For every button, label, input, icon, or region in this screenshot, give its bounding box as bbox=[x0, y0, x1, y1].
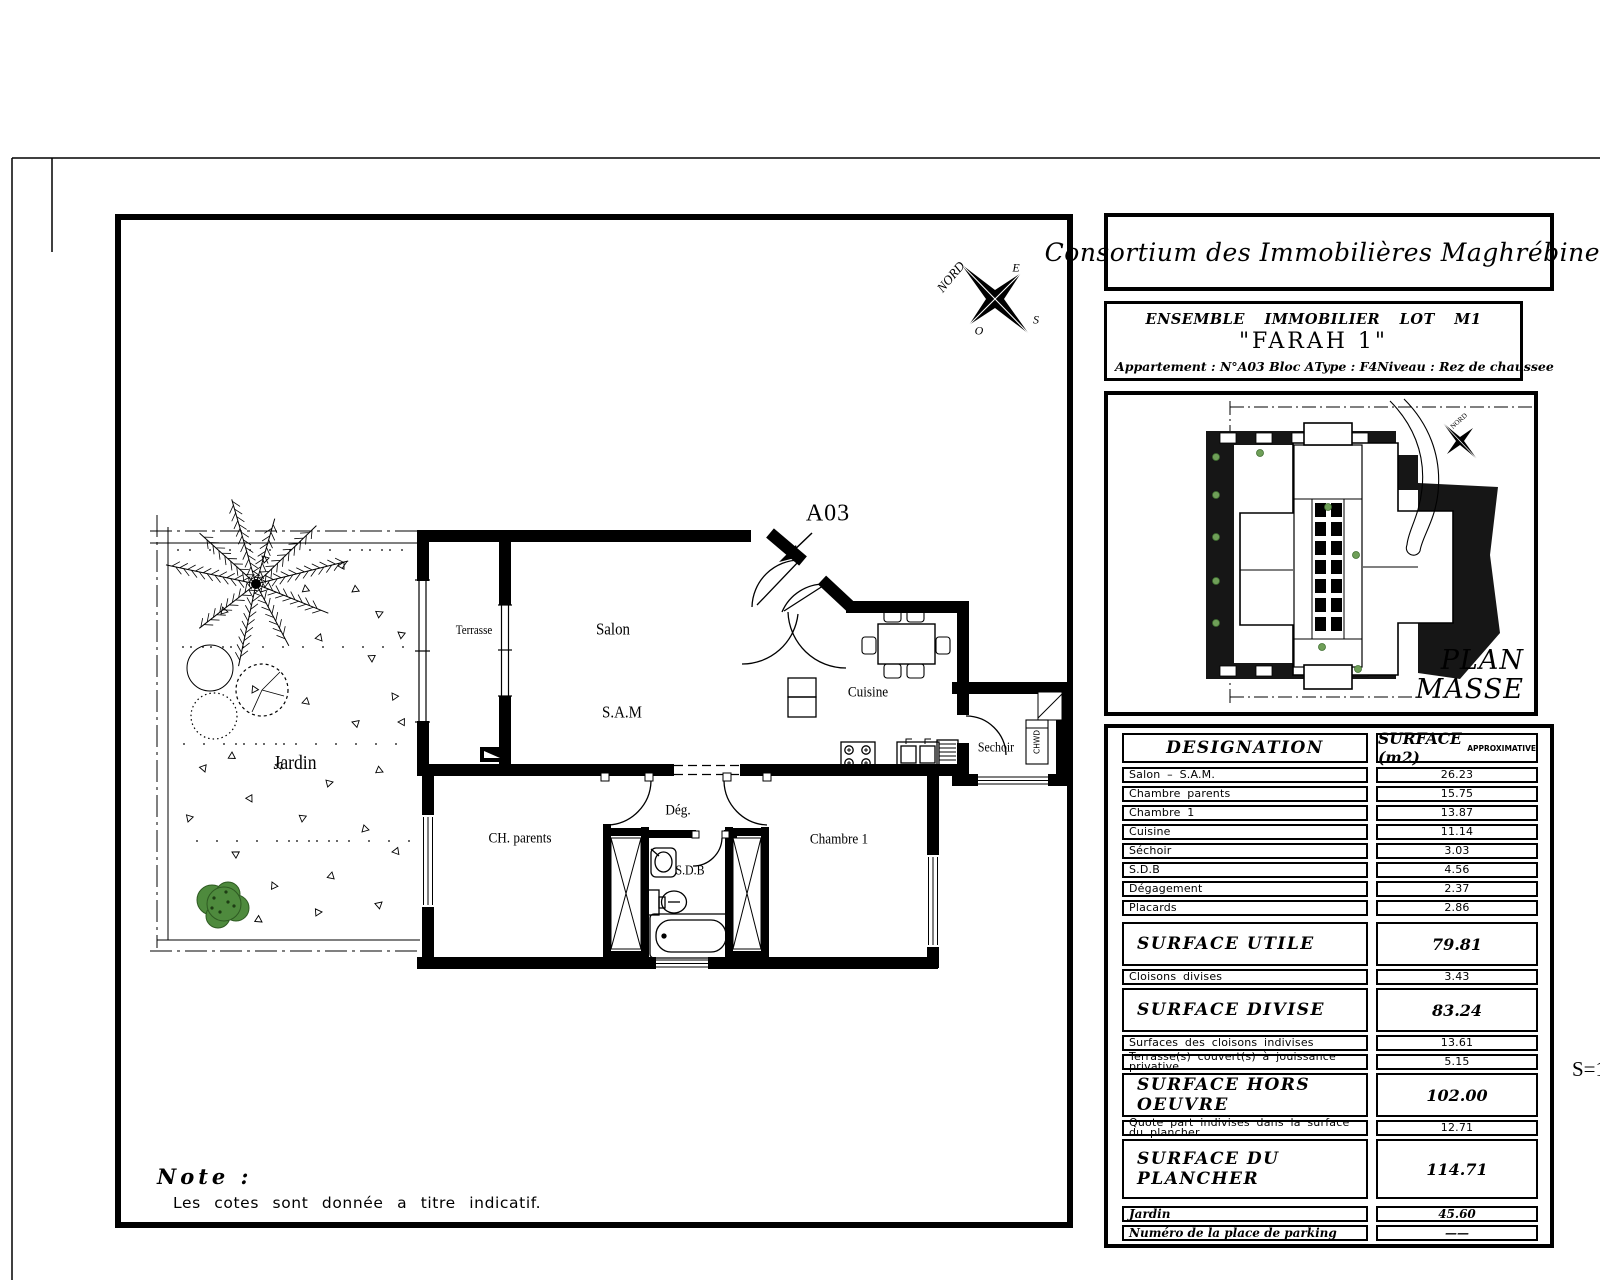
row-label: Placards bbox=[1122, 900, 1368, 916]
room-label-chambre1: Chambre 1 bbox=[810, 833, 868, 848]
room-label-sechoir: Sechoir bbox=[978, 740, 1014, 754]
project-info-block: ENSEMBLE IMMOBILIER LOT M1 "FARAH 1" App… bbox=[1104, 301, 1523, 381]
company-title-block: Consortium des Immobilières Maghrébines bbox=[1104, 213, 1554, 291]
table-row: Salon – S.A.M.26.23 bbox=[1122, 767, 1538, 783]
compass-east-label: E bbox=[1012, 261, 1019, 276]
row-label: SURFACE DIVISE bbox=[1122, 988, 1368, 1032]
row-value: 13.87 bbox=[1376, 805, 1538, 821]
water-heater-label: CHWD bbox=[1033, 730, 1041, 754]
jardin-scatter bbox=[177, 549, 410, 923]
room-label-cuisine: Cuisine bbox=[848, 686, 888, 701]
header-designation: DESIGNATION bbox=[1122, 733, 1368, 763]
table-row: Chambre parents15.75 bbox=[1122, 786, 1538, 802]
room-label-ch-parents: CH. parents bbox=[488, 832, 551, 847]
row-value: 3.43 bbox=[1376, 969, 1538, 985]
row-label: Chambre parents bbox=[1122, 786, 1368, 802]
row-label: Terrasse(s) couvert(s) à jouissance priv… bbox=[1122, 1054, 1368, 1070]
row-value: 11.14 bbox=[1376, 824, 1538, 840]
site-compass bbox=[1443, 423, 1477, 459]
table-row: Terrasse(s) couvert(s) à jouissance priv… bbox=[1122, 1054, 1538, 1070]
plan-frame bbox=[118, 217, 1070, 1225]
row-value: 102.00 bbox=[1376, 1073, 1538, 1117]
row-value: 13.61 bbox=[1376, 1035, 1538, 1051]
row-value: 4.56 bbox=[1376, 862, 1538, 878]
type-info: Type : F4 bbox=[1314, 359, 1377, 374]
jardin-bushes bbox=[187, 645, 288, 739]
row-value: 45.60 bbox=[1376, 1206, 1538, 1222]
row-value: 2.86 bbox=[1376, 900, 1538, 916]
drawing-sheet: { "sheet": { "scale": "S=1", "note_title… bbox=[0, 0, 1600, 1280]
table-row: SURFACE DIVISE83.24 bbox=[1122, 988, 1538, 1032]
table-row: Jardin45.60 bbox=[1122, 1206, 1538, 1222]
row-label: Séchoir bbox=[1122, 843, 1368, 859]
table-row: Numéro de la place de parking—— bbox=[1122, 1225, 1538, 1241]
row-value: 5.15 bbox=[1376, 1054, 1538, 1070]
header-surface: SURFACE (m2) APPROXIMATIVE bbox=[1376, 733, 1538, 763]
table-row: Cuisine11.14 bbox=[1122, 824, 1538, 840]
project-line: ENSEMBLE IMMOBILIER LOT M1 bbox=[1107, 311, 1520, 328]
exterior-walls bbox=[417, 530, 1068, 968]
row-label: Cuisine bbox=[1122, 824, 1368, 840]
compass-south-label: S bbox=[1033, 313, 1039, 328]
level-info: Niveau : Rez de chaussee bbox=[1377, 359, 1554, 374]
note-body: Les cotes sont donnée a titre indicatif. bbox=[173, 1194, 541, 1212]
surface-table-block: DESIGNATION SURFACE (m2) APPROXIMATIVE S… bbox=[1104, 724, 1554, 1248]
unit-label: A03 bbox=[806, 501, 850, 528]
row-label: Cloisons divises bbox=[1122, 969, 1368, 985]
scale-label: S=1 bbox=[1572, 1057, 1600, 1082]
room-label-terrasse: Terrasse bbox=[456, 624, 492, 637]
row-value: 3.03 bbox=[1376, 843, 1538, 859]
apartment-info: Appartement : N°A03 Bloc A bbox=[1115, 359, 1314, 374]
table-row: SURFACE DU PLANCHER114.71 bbox=[1122, 1139, 1538, 1199]
row-label: Quote part indivises dans la surface du … bbox=[1122, 1120, 1368, 1136]
row-value: 26.23 bbox=[1376, 767, 1538, 783]
site-plan-block: NORD PLAN MASSE bbox=[1104, 391, 1538, 716]
compass-west-label: O bbox=[975, 324, 984, 339]
row-label: Chambre 1 bbox=[1122, 805, 1368, 821]
surface-table-header: DESIGNATION SURFACE (m2) APPROXIMATIVE bbox=[1122, 733, 1538, 763]
row-label: Dégagement bbox=[1122, 881, 1368, 897]
table-row: Quote part indivises dans la surface du … bbox=[1122, 1120, 1538, 1136]
row-label: Jardin bbox=[1122, 1206, 1368, 1222]
row-label: S.D.B bbox=[1122, 862, 1368, 878]
row-value: —— bbox=[1376, 1225, 1538, 1241]
room-label-jardin: Jardin bbox=[273, 753, 316, 773]
table-row: S.D.B4.56 bbox=[1122, 862, 1538, 878]
row-value: 15.75 bbox=[1376, 786, 1538, 802]
project-name: "FARAH 1" bbox=[1107, 329, 1520, 354]
site-plan-title: PLAN MASSE bbox=[1416, 646, 1524, 704]
green-bush bbox=[197, 882, 249, 928]
room-label-deg: Dég. bbox=[665, 804, 690, 819]
table-row: Cloisons divises3.43 bbox=[1122, 969, 1538, 985]
table-row: Dégagement2.37 bbox=[1122, 881, 1538, 897]
row-label: Salon – S.A.M. bbox=[1122, 767, 1368, 783]
room-label-salon: Salon bbox=[596, 621, 630, 638]
row-label: SURFACE HORS OEUVRE bbox=[1122, 1073, 1368, 1117]
table-row: SURFACE UTILE79.81 bbox=[1122, 922, 1538, 966]
surface-table-rows: Salon – S.A.M.26.23Chambre parents15.75C… bbox=[1122, 767, 1538, 1241]
table-row: Surfaces des cloisons indivises13.61 bbox=[1122, 1035, 1538, 1051]
room-label-sam: S.A.M bbox=[602, 704, 642, 721]
row-value: 79.81 bbox=[1376, 922, 1538, 966]
table-row: Chambre 113.87 bbox=[1122, 805, 1538, 821]
interior-walls bbox=[607, 824, 765, 963]
company-name: Consortium des Immobilières Maghrébines bbox=[1045, 238, 1600, 267]
row-label: SURFACE UTILE bbox=[1122, 922, 1368, 966]
row-value: 114.71 bbox=[1376, 1139, 1538, 1199]
row-label: Surfaces des cloisons indivises bbox=[1122, 1035, 1368, 1051]
row-label: SURFACE DU PLANCHER bbox=[1122, 1139, 1368, 1199]
note-title: Note : bbox=[157, 1164, 252, 1189]
row-value: 12.71 bbox=[1376, 1120, 1538, 1136]
row-value: 83.24 bbox=[1376, 988, 1538, 1032]
placards bbox=[603, 828, 769, 959]
table-row: Séchoir3.03 bbox=[1122, 843, 1538, 859]
row-value: 2.37 bbox=[1376, 881, 1538, 897]
table-row: SURFACE HORS OEUVRE102.00 bbox=[1122, 1073, 1538, 1117]
row-label: Numéro de la place de parking bbox=[1122, 1225, 1368, 1241]
table-row: Placards2.86 bbox=[1122, 900, 1538, 916]
jardin-boundary bbox=[150, 515, 420, 951]
room-label-sdb: S.D.B bbox=[675, 863, 704, 877]
